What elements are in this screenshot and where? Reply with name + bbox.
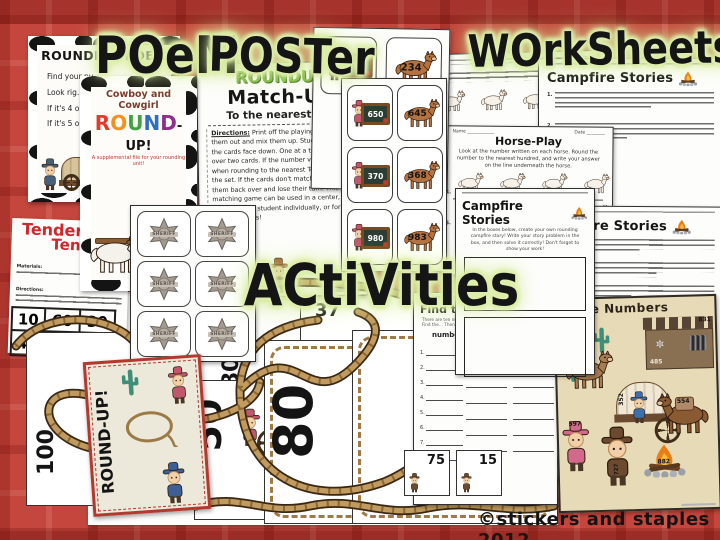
card-number: 650 <box>368 110 384 119</box>
hidden-number: 554 <box>677 399 690 405</box>
hidden-number: 831 <box>698 317 711 323</box>
sheriff-badge-card: SHERIFF <box>195 311 249 357</box>
card-number: 368 <box>408 171 427 181</box>
cowboy-icon <box>628 390 651 425</box>
cactus-icon <box>120 365 140 398</box>
sheriff-badge-label: SHERIFF <box>208 282 235 287</box>
card-15: 15 <box>456 450 502 496</box>
campfire-stories-title: Campfire Stories <box>462 199 567 227</box>
card-number: 15 <box>479 453 497 468</box>
sheriff-badge-label: SHERIFF <box>150 232 177 237</box>
campfire-create-directions: In the boxes below, create your own roun… <box>466 228 584 254</box>
hidden-number: 727 <box>615 461 621 477</box>
collage-background: Campfire Stories 1. 2. Name ____________… <box>0 0 720 540</box>
sheriff-badge-label: SHERIFF <box>208 232 235 237</box>
find-item: 5. <box>420 410 425 416</box>
horse-number-card: 368 <box>397 147 443 203</box>
label-worksheets: WOrkSheets <box>467 25 720 74</box>
grid-cell: 60 <box>45 308 81 334</box>
date-label: Date ________ <box>574 130 604 135</box>
materials-label: Materials: <box>17 265 43 271</box>
directions-label: Directions: <box>211 130 250 138</box>
horse-play-title: Horse-Play <box>444 134 612 148</box>
cowboy-icon <box>159 459 190 505</box>
cowboy-icon <box>408 472 421 493</box>
horse-outline-icon <box>478 89 509 112</box>
card-number: 370 <box>368 172 384 181</box>
sheriff-badge-card: SHERIFF <box>137 261 191 307</box>
campfire-icon <box>570 206 588 220</box>
cowgirl-number-card: 370 <box>347 147 393 203</box>
cowgirl-number-card: 650 <box>347 85 393 141</box>
find-item: 3. <box>420 380 425 386</box>
cover-letter: N <box>143 111 160 135</box>
hidden-number: 352 <box>619 389 626 409</box>
campfire-icon <box>671 219 693 234</box>
sheriff-badge-label: SHERIFF <box>150 332 177 337</box>
card-number: 980 <box>368 234 384 243</box>
cover-kicker: Cowboy and Cowgirl <box>91 89 186 111</box>
cowboy-icon: 727 <box>596 422 640 511</box>
problem-number: 1. <box>547 92 552 111</box>
hidden-number: 485 <box>650 359 663 365</box>
directions-label: Directions: <box>16 288 44 294</box>
roundup-red-card: ROUND-UP! <box>83 354 212 517</box>
sheriff-badge-cards-sheet: SHERIFF SHERIFF SHERIFF SHERIFF SHERIFF … <box>130 205 256 362</box>
cowgirl-icon <box>164 364 193 406</box>
card-number: 75 <box>427 453 445 468</box>
sheriff-badge-label: SHERIFF <box>150 282 177 287</box>
card-number: 234 <box>401 62 422 73</box>
card-75: 75 <box>404 450 450 496</box>
label-activities: ACtiVities <box>244 257 520 315</box>
name-label: Name ____________ <box>453 129 495 134</box>
pack-mule-icon: 554 <box>655 388 718 442</box>
sheriff-badge-card: SHERIFF <box>195 211 249 257</box>
hidden-number: 597 <box>568 421 581 427</box>
cover-letter: U <box>127 111 143 135</box>
playing-cards-sheet: 650 645 370 368 980 983 <box>341 78 447 272</box>
cover-letter: D <box>160 111 177 135</box>
card-number: 645 <box>408 109 427 119</box>
credit-line <box>682 502 716 505</box>
number-80-big: 80 <box>267 389 321 459</box>
hidden-number: 882 <box>657 459 670 465</box>
card-number: 983 <box>408 233 427 243</box>
cover-tagline: A supplemental file for your rounding un… <box>91 155 186 167</box>
sheriff-badge-card: SHERIFF <box>137 211 191 257</box>
cover-letter: R <box>95 111 110 135</box>
story-box <box>464 317 586 377</box>
campfire-icon: 882 <box>639 443 692 478</box>
cover-letter: O <box>110 111 127 135</box>
lasso-loop-icon <box>121 405 178 451</box>
horse-play-directions: Look at the number written on each horse… <box>456 148 600 170</box>
cowgirl-icon: 597 <box>558 417 596 498</box>
find-item: 7. <box>420 440 425 446</box>
find-item: 1. <box>420 350 425 356</box>
cowboy-icon <box>460 472 473 493</box>
label-poster: POSTer <box>208 31 375 83</box>
number-100: 100 <box>36 422 58 482</box>
horse-number-card: 645 <box>397 85 443 141</box>
badge-icon <box>654 338 665 349</box>
sheriff-badge-card: SHERIFF <box>195 261 249 307</box>
sheriff-badge-card: SHERIFF <box>137 311 191 357</box>
find-item: 4. <box>420 395 425 401</box>
cover-title: ROUND-UP! <box>91 113 186 153</box>
jail-building-icon: 831 485 <box>643 316 714 368</box>
find-item: 2. <box>420 365 425 371</box>
cowboy-icon <box>39 157 61 191</box>
copyright-text: ©stickers and staples 2012 <box>478 509 720 540</box>
grid-cell: 10 <box>10 306 46 332</box>
find-item: 6. <box>420 425 425 431</box>
sheriff-badge-label: SHERIFF <box>208 332 235 337</box>
